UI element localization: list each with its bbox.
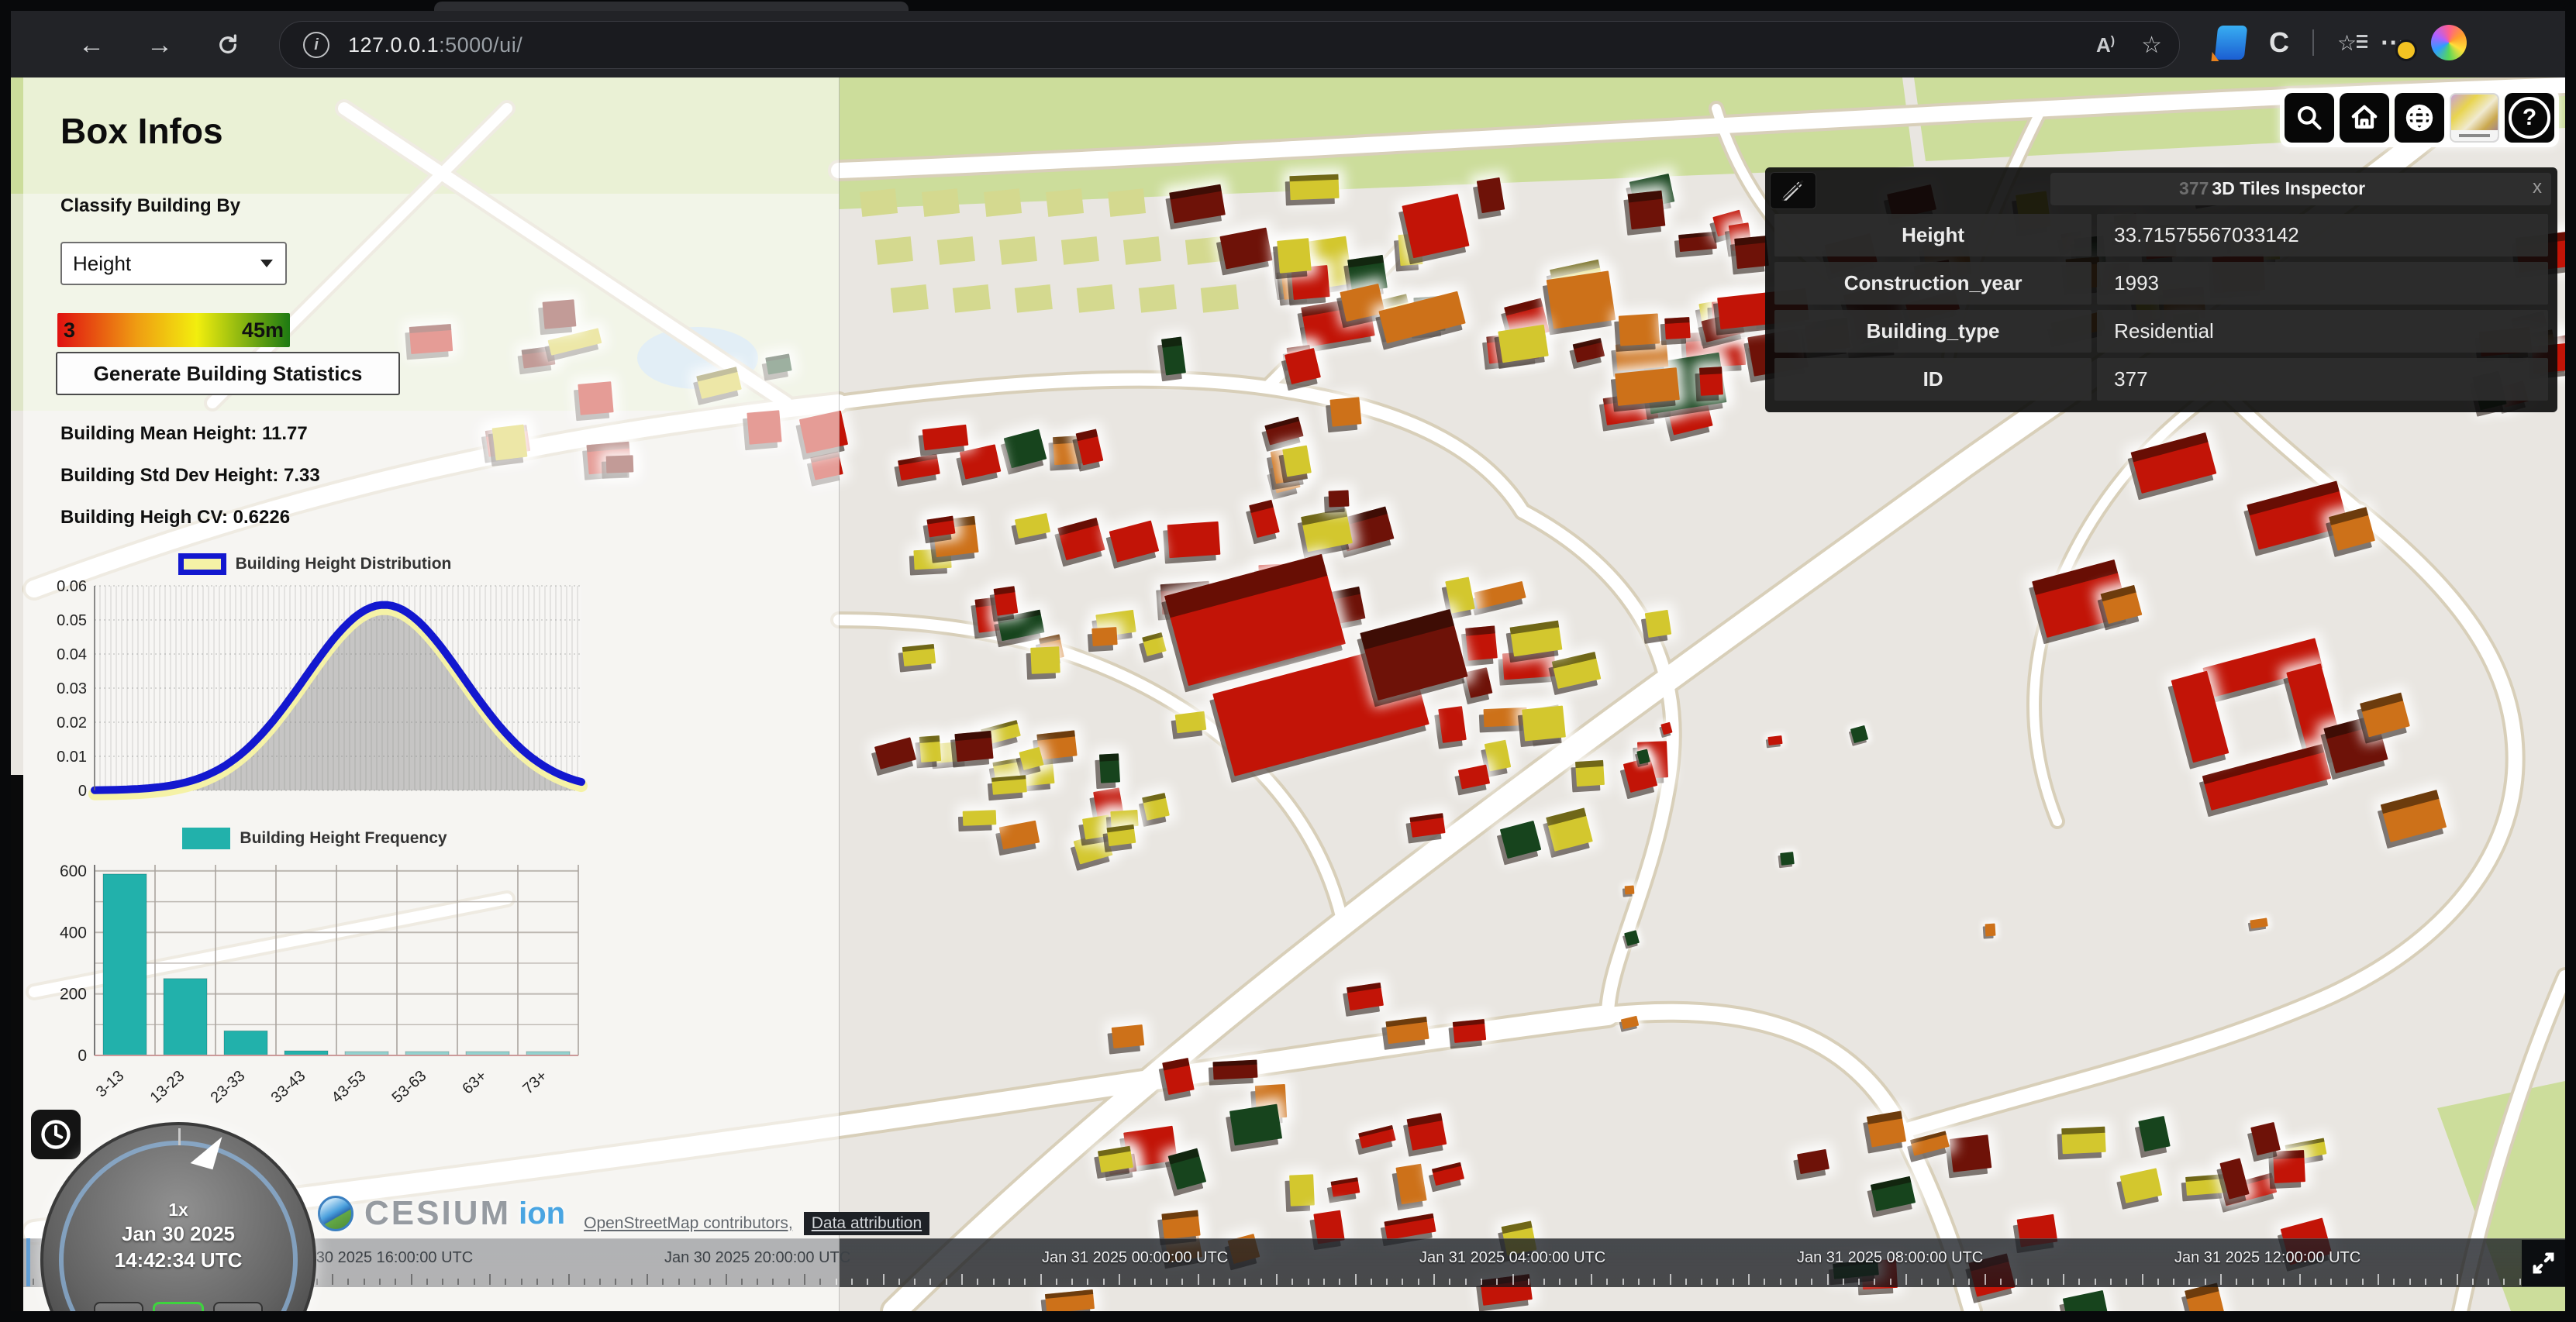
building-3d[interactable] bbox=[1625, 885, 1634, 894]
building-3d[interactable] bbox=[1111, 1024, 1144, 1048]
building-3d[interactable] bbox=[1285, 348, 1321, 384]
building-3d[interactable] bbox=[1330, 397, 1362, 426]
toolbar-divider bbox=[2312, 29, 2314, 56]
building-3d[interactable] bbox=[1402, 194, 1469, 259]
building-3d[interactable] bbox=[1329, 491, 1350, 508]
favorite-star-icon[interactable]: ☆ bbox=[2141, 32, 2162, 59]
clock-icon bbox=[39, 1117, 73, 1152]
inspector-table: Height 33.71575567033142 Construction_ye… bbox=[1774, 214, 2548, 401]
distribution-plot: 0.060.050.040.030.020.010 bbox=[37, 580, 592, 821]
row-label: ID bbox=[1774, 358, 2091, 401]
cesium-brand: CESIUM bbox=[364, 1194, 511, 1233]
base-layer-label bbox=[2451, 130, 2498, 141]
inspector-header: 377 3D Tiles Inspector x bbox=[1765, 167, 2557, 209]
building-3d[interactable] bbox=[1360, 609, 1467, 701]
generate-statistics-button[interactable]: Generate Building Statistics bbox=[56, 352, 400, 395]
building-3d[interactable] bbox=[1219, 228, 1272, 270]
building-3d[interactable] bbox=[1340, 284, 1385, 322]
building-3d[interactable] bbox=[1910, 1131, 1950, 1156]
building-3d[interactable] bbox=[1330, 1177, 1360, 1197]
building-3d[interactable] bbox=[1091, 627, 1118, 646]
frequency-legend-swatch bbox=[182, 828, 230, 849]
row-value: 377 bbox=[2097, 358, 2548, 401]
building-3d[interactable] bbox=[1465, 625, 1498, 660]
building-3d[interactable] bbox=[2250, 917, 2267, 928]
browser-extensions-area: C ☆ ⋯ bbox=[2216, 25, 2467, 60]
extension-icon[interactable] bbox=[2215, 26, 2248, 60]
svg-text:400: 400 bbox=[60, 924, 87, 942]
speed-multiplier: 1x bbox=[43, 1200, 313, 1220]
frequency-legend-label: Building Height Frequency bbox=[240, 829, 447, 848]
building-3d[interactable] bbox=[1780, 852, 1794, 866]
address-bar[interactable]: i 127.0.0.1:5000/ui/ A) ☆ bbox=[279, 21, 2180, 69]
building-3d[interactable] bbox=[1162, 1058, 1194, 1095]
svg-text:0.04: 0.04 bbox=[57, 646, 87, 663]
legend-max-value: 45m bbox=[242, 318, 284, 343]
building-3d[interactable] bbox=[1142, 632, 1166, 656]
building-3d[interactable] bbox=[1003, 429, 1046, 468]
close-icon[interactable]: x bbox=[2533, 177, 2542, 198]
building-3d[interactable] bbox=[1797, 1149, 1829, 1174]
building-3d[interactable] bbox=[1458, 765, 1490, 790]
svg-text:0: 0 bbox=[78, 783, 87, 800]
building-3d[interactable] bbox=[2360, 693, 2410, 738]
building-3d[interactable] bbox=[1168, 1148, 1207, 1190]
building-3d[interactable] bbox=[994, 586, 1018, 616]
forward-button[interactable]: → bbox=[140, 25, 180, 65]
refresh-icon bbox=[216, 33, 240, 57]
collections-icon[interactable]: ☆ bbox=[2337, 30, 2357, 56]
building-3d[interactable] bbox=[1477, 177, 1505, 213]
building-3d[interactable] bbox=[1169, 184, 1226, 223]
mean-height-stat: Building Mean Height: 11.77 bbox=[60, 423, 308, 445]
scene-mode-button[interactable] bbox=[2395, 93, 2444, 143]
read-aloud-icon[interactable]: A) bbox=[2096, 33, 2115, 57]
building-3d[interactable] bbox=[919, 735, 940, 763]
play-forward-button[interactable]: ▶ bbox=[213, 1302, 263, 1311]
building-3d[interactable] bbox=[999, 821, 1040, 849]
building-3d[interactable] bbox=[1030, 646, 1060, 674]
cesium-logo-icon bbox=[318, 1196, 353, 1231]
svg-text:53-63: 53-63 bbox=[389, 1067, 430, 1107]
table-row: ID 377 bbox=[1774, 358, 2548, 401]
building-3d[interactable] bbox=[898, 454, 940, 481]
chevron-down-icon bbox=[260, 260, 273, 267]
building-3d[interactable] bbox=[1058, 518, 1106, 560]
building-3d[interactable] bbox=[1735, 236, 1770, 268]
distribution-legend-label: Building Height Distribution bbox=[236, 555, 452, 573]
inspector-feature-id-ghost: 377 bbox=[2179, 178, 2209, 199]
building-3d[interactable] bbox=[2250, 1122, 2281, 1155]
refresh-button[interactable] bbox=[208, 25, 248, 65]
building-3d[interactable] bbox=[1552, 652, 1601, 688]
site-info-icon[interactable]: i bbox=[303, 32, 329, 58]
svg-text:23-33: 23-33 bbox=[208, 1067, 249, 1107]
frequency-chart: Building Height Frequency 02004006003-13… bbox=[37, 823, 592, 1146]
notification-badge bbox=[2395, 40, 2417, 61]
table-row: Height 33.71575567033142 bbox=[1774, 214, 2548, 256]
building-3d[interactable] bbox=[1229, 1104, 1282, 1145]
table-row: Construction_year 1993 bbox=[1774, 262, 2548, 305]
building-3d[interactable] bbox=[1265, 416, 1305, 445]
building-3d[interactable] bbox=[1109, 521, 1159, 563]
building-3d[interactable] bbox=[1645, 610, 1671, 638]
building-3d[interactable] bbox=[1395, 1164, 1426, 1204]
url-text[interactable]: 127.0.0.1:5000/ui/ bbox=[348, 33, 522, 57]
svg-text:600: 600 bbox=[60, 862, 87, 880]
svg-text:0.03: 0.03 bbox=[57, 680, 87, 697]
row-value: 1993 bbox=[2097, 262, 2548, 305]
building-3d[interactable] bbox=[1950, 1134, 1992, 1172]
inspector-title: 3D Tiles Inspector bbox=[2212, 178, 2365, 199]
building-3d[interactable] bbox=[902, 644, 936, 666]
building-3d[interactable] bbox=[2131, 432, 2217, 494]
inspector-tool-button[interactable] bbox=[1770, 172, 1816, 209]
building-3d[interactable] bbox=[2119, 1169, 2161, 1203]
height-color-legend: 3 45m bbox=[57, 313, 290, 347]
pause-button[interactable] bbox=[153, 1302, 204, 1311]
row-label: Height bbox=[1774, 214, 2091, 256]
clock-toggle-button[interactable] bbox=[31, 1110, 81, 1159]
building-3d[interactable] bbox=[1289, 1174, 1315, 1207]
search-icon bbox=[2295, 103, 2324, 133]
fullscreen-button[interactable] bbox=[2522, 1240, 2565, 1286]
row-value: Residential bbox=[2097, 310, 2548, 353]
building-3d[interactable] bbox=[1621, 1016, 1639, 1029]
building-3d[interactable] bbox=[1575, 760, 1604, 787]
svg-text:63+: 63+ bbox=[459, 1067, 490, 1097]
window-frame: ← → i 127.0.0.1:5000/ui/ A) ☆ C ☆ ⋯ bbox=[0, 0, 2576, 1322]
timeline-needle[interactable] bbox=[26, 1238, 30, 1286]
building-3d[interactable] bbox=[1871, 1176, 1916, 1211]
current-date: Jan 30 2025 bbox=[43, 1220, 313, 1247]
building-3d[interactable] bbox=[1483, 707, 1527, 728]
current-time: 14:42:34 UTC bbox=[43, 1247, 313, 1273]
dial-notch bbox=[178, 1128, 181, 1145]
building-3d[interactable] bbox=[1384, 1214, 1436, 1241]
frequency-legend[interactable]: Building Height Frequency bbox=[37, 823, 592, 854]
svg-text:3-13: 3-13 bbox=[93, 1067, 127, 1100]
browser-addon-icon[interactable]: C bbox=[2269, 26, 2289, 59]
building-3d[interactable] bbox=[874, 737, 917, 769]
building-3d[interactable] bbox=[1432, 1162, 1464, 1186]
building-3d[interactable] bbox=[1107, 825, 1136, 847]
building-3d[interactable] bbox=[1249, 500, 1279, 538]
building-3d[interactable] bbox=[1867, 1110, 1907, 1147]
building-3d[interactable] bbox=[1628, 191, 1665, 230]
attribution-link[interactable]: OpenStreetMap contributors, bbox=[584, 1214, 793, 1233]
pencil-slash-icon bbox=[1780, 179, 1806, 202]
back-button[interactable]: ← bbox=[71, 25, 112, 65]
building-3d[interactable] bbox=[1409, 813, 1445, 837]
home-icon bbox=[2349, 102, 2380, 133]
building-3d[interactable] bbox=[1445, 577, 1475, 614]
svg-text:0.02: 0.02 bbox=[57, 714, 87, 732]
svg-text:43-53: 43-53 bbox=[329, 1067, 370, 1107]
svg-text:0.01: 0.01 bbox=[57, 749, 87, 766]
help-button[interactable]: ? bbox=[2505, 93, 2554, 143]
cv-height-stat: Building Heigh CV: 0.6226 bbox=[60, 507, 290, 528]
row-label: Construction_year bbox=[1774, 262, 2091, 305]
frequency-plot: 02004006003-1313-2323-3333-4343-5353-636… bbox=[37, 854, 592, 1142]
svg-text:33-43: 33-43 bbox=[268, 1067, 309, 1107]
svg-text:73+: 73+ bbox=[519, 1067, 550, 1097]
fullscreen-icon bbox=[2530, 1250, 2557, 1276]
building-3d[interactable] bbox=[2138, 1116, 2171, 1152]
building-3d[interactable] bbox=[1142, 793, 1169, 820]
building-3d[interactable] bbox=[1045, 1289, 1095, 1311]
building-3d[interactable] bbox=[922, 425, 968, 451]
building-3d[interactable] bbox=[1573, 338, 1605, 363]
building-3d[interactable] bbox=[1678, 232, 1717, 252]
building-3d[interactable] bbox=[1474, 581, 1526, 609]
building-3d[interactable] bbox=[1546, 270, 1615, 329]
tiles-inspector-panel: 377 3D Tiles Inspector x Height 33.71575… bbox=[1765, 167, 2557, 412]
svg-text:0.05: 0.05 bbox=[57, 612, 87, 629]
building-3d[interactable] bbox=[1499, 821, 1540, 859]
building-3d[interactable] bbox=[1615, 367, 1680, 406]
legend-min-value: 3 bbox=[64, 318, 75, 343]
help-icon: ? bbox=[2509, 97, 2550, 139]
building-3d[interactable] bbox=[1438, 706, 1467, 743]
building-3d[interactable] bbox=[1624, 931, 1640, 947]
building-3d[interactable] bbox=[2185, 1283, 2226, 1311]
building-3d[interactable] bbox=[1546, 808, 1593, 852]
page-title: Box Infos bbox=[60, 110, 223, 152]
svg-text:0: 0 bbox=[78, 1047, 87, 1065]
base-layer-picker-button[interactable] bbox=[2450, 93, 2499, 143]
building-3d[interactable] bbox=[1850, 725, 1868, 743]
building-3d[interactable] bbox=[1767, 735, 1783, 745]
building-3d[interactable] bbox=[2273, 1150, 2305, 1183]
viewer-toolbar: ? bbox=[2280, 88, 2559, 147]
distribution-chart: Building Height Distribution 0.060.050.0… bbox=[37, 549, 592, 825]
building-3d[interactable] bbox=[962, 810, 995, 826]
building-3d[interactable] bbox=[1347, 983, 1384, 1010]
building-3d[interactable] bbox=[1407, 1114, 1447, 1152]
building-3d[interactable] bbox=[2061, 1126, 2106, 1154]
building-3d[interactable] bbox=[1099, 753, 1120, 783]
building-3d[interactable] bbox=[1985, 924, 1996, 937]
building-3d[interactable] bbox=[2185, 1174, 2226, 1196]
building-3d[interactable] bbox=[992, 776, 1028, 796]
table-row: Building_type Residential bbox=[1774, 310, 2548, 353]
building-3d[interactable] bbox=[960, 445, 1001, 480]
window-edge bbox=[11, 775, 23, 1311]
building-3d[interactable] bbox=[1485, 739, 1512, 771]
building-3d[interactable] bbox=[1289, 174, 1339, 200]
settings-menu-icon[interactable]: ⋯ bbox=[2380, 27, 2408, 58]
building-3d[interactable] bbox=[1161, 336, 1186, 375]
building-3d[interactable] bbox=[1522, 706, 1566, 742]
building-3d[interactable] bbox=[1385, 1017, 1429, 1044]
cesium-ion-brand: ion bbox=[519, 1196, 565, 1231]
building-3d[interactable] bbox=[1212, 1059, 1257, 1079]
stddev-height-stat: Building Std Dev Height: 7.33 bbox=[60, 465, 320, 487]
building-3d[interactable] bbox=[1167, 522, 1221, 558]
play-reverse-button[interactable]: ◀ bbox=[94, 1302, 143, 1311]
cesium-viewport[interactable]: Box Infos Classify Building By Height 3 … bbox=[11, 77, 2565, 1311]
building-3d[interactable] bbox=[1015, 513, 1051, 539]
building-3d[interactable] bbox=[1175, 711, 1207, 734]
building-3d[interactable] bbox=[2381, 790, 2447, 842]
classify-select[interactable]: Height bbox=[60, 242, 287, 285]
building-3d[interactable] bbox=[1282, 445, 1312, 477]
geocoder-search-button[interactable] bbox=[2285, 93, 2334, 143]
svg-text:0.06: 0.06 bbox=[57, 580, 87, 595]
svg-text:13-23: 13-23 bbox=[147, 1067, 188, 1107]
building-3d[interactable] bbox=[1664, 317, 1691, 339]
globe-icon bbox=[2403, 102, 2436, 134]
distribution-legend[interactable]: Building Height Distribution bbox=[37, 549, 592, 580]
row-label: Building_type bbox=[1774, 310, 2091, 353]
building-3d[interactable] bbox=[955, 731, 994, 763]
row-value: 33.71575567033142 bbox=[2097, 214, 2548, 256]
building-3d[interactable] bbox=[2063, 1290, 2109, 1311]
browser-toolbar: ← → i 127.0.0.1:5000/ui/ A) ☆ C ☆ ⋯ bbox=[11, 11, 2565, 78]
cesium-credit: CESIUM ion OpenStreetMap contributors, D… bbox=[318, 1192, 929, 1235]
building-3d[interactable] bbox=[1619, 314, 1660, 346]
building-3d[interactable] bbox=[1498, 325, 1550, 363]
classify-by-label: Classify Building By bbox=[60, 195, 240, 217]
distribution-legend-swatch bbox=[178, 553, 226, 575]
building-3d[interactable] bbox=[1277, 238, 1311, 274]
home-view-button[interactable] bbox=[2340, 93, 2389, 143]
data-attribution-link[interactable]: Data attribution bbox=[804, 1212, 929, 1235]
classify-select-value: Height bbox=[73, 252, 131, 276]
building-3d[interactable] bbox=[1161, 1210, 1200, 1240]
svg-text:200: 200 bbox=[60, 986, 87, 1004]
building-3d[interactable] bbox=[1358, 1125, 1396, 1149]
building-3d[interactable] bbox=[1660, 721, 1673, 735]
building-3d[interactable] bbox=[1453, 1019, 1486, 1043]
copilot-icon[interactable] bbox=[2431, 25, 2467, 60]
building-3d[interactable] bbox=[1036, 730, 1078, 760]
building-3d[interactable] bbox=[1699, 367, 1723, 396]
building-3d[interactable] bbox=[1464, 667, 1492, 698]
